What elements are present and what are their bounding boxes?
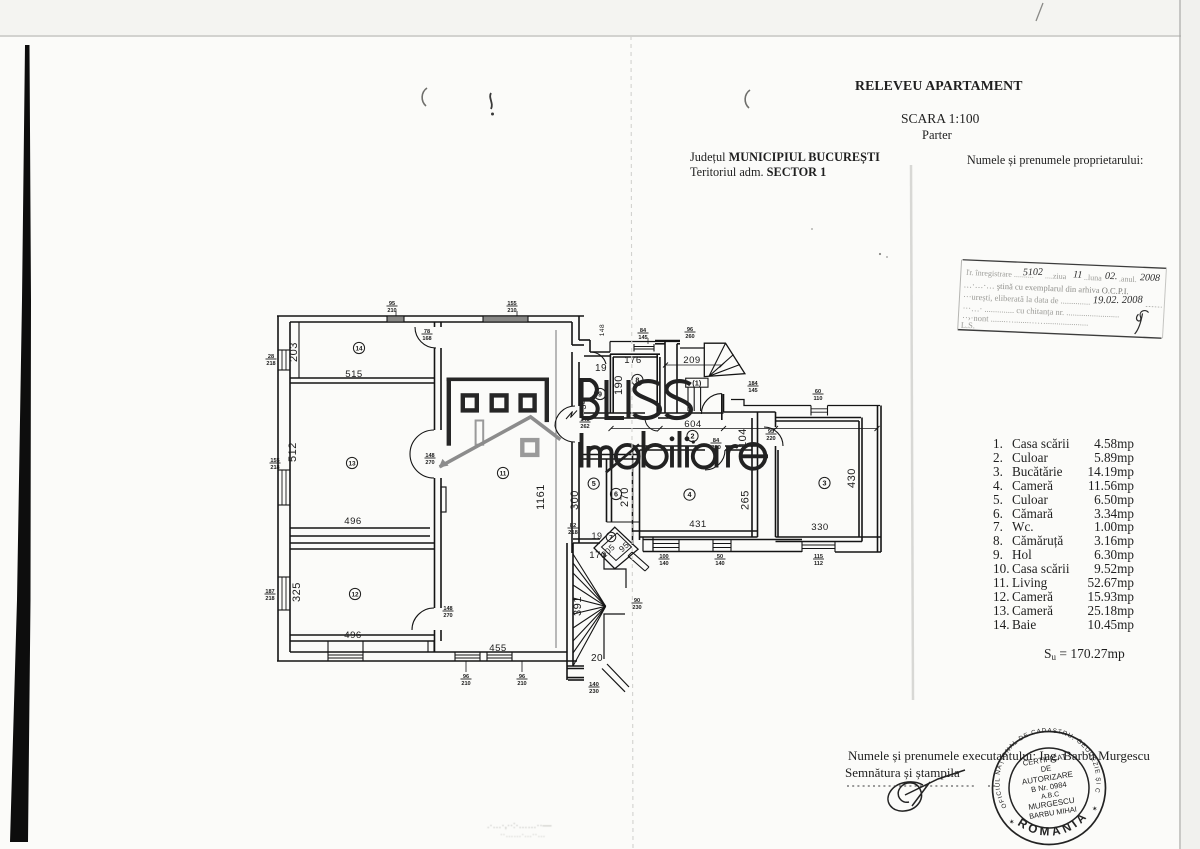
svg-text:270: 270: [619, 487, 631, 507]
svg-text:210: 210: [461, 681, 470, 687]
svg-text:148: 148: [599, 324, 606, 336]
svg-text:110: 110: [813, 396, 822, 402]
svg-text:260: 260: [685, 334, 694, 340]
svg-text:19.02. 2008: 19.02. 2008: [1093, 295, 1144, 307]
svg-text:.·…·,··:·……··—: .·…·,··:·……··—: [487, 820, 551, 830]
svg-text:11: 11: [1073, 269, 1083, 280]
svg-text:19: 19: [595, 363, 607, 374]
svg-text:209: 209: [683, 355, 701, 366]
svg-text:19: 19: [591, 531, 602, 541]
svg-text:430: 430: [846, 468, 858, 488]
svg-text:330: 330: [811, 522, 829, 533]
svg-text:.anul.: .anul.: [1119, 274, 1137, 284]
svg-text:300: 300: [569, 490, 581, 510]
svg-text:1161: 1161: [535, 484, 547, 510]
svg-text:4: 4: [688, 490, 692, 499]
svg-text:496: 496: [344, 516, 362, 527]
svg-text:210: 210: [387, 308, 396, 314]
svg-text:270: 270: [425, 460, 434, 466]
svg-text:3: 3: [823, 478, 827, 487]
svg-text:203: 203: [288, 342, 300, 362]
svg-text:431: 431: [689, 519, 707, 530]
svg-text:....ziua: ....ziua: [1045, 271, 1067, 281]
svg-text:218: 218: [266, 361, 275, 367]
svg-text:..luna: ..luna: [1084, 273, 1103, 283]
svg-text:5: 5: [592, 479, 596, 488]
svg-text:20: 20: [591, 653, 603, 664]
svg-text:02.: 02.: [1105, 271, 1118, 283]
svg-text:512: 512: [287, 442, 299, 462]
svg-text:12: 12: [351, 591, 359, 598]
svg-text:145: 145: [638, 335, 647, 341]
svg-text:140: 140: [659, 561, 668, 567]
svg-text:✶: ✶: [1008, 818, 1015, 827]
svg-text:604: 604: [684, 419, 702, 430]
svg-text:230: 230: [589, 689, 599, 695]
svg-text:168: 168: [422, 336, 431, 342]
svg-text:190: 190: [613, 375, 625, 395]
svg-text:218: 218: [568, 530, 578, 536]
svg-text:210: 210: [507, 308, 516, 314]
svg-text:218: 218: [265, 596, 274, 602]
svg-text:270: 270: [443, 613, 452, 619]
svg-text:112: 112: [814, 561, 823, 567]
svg-text:170: 170: [589, 550, 607, 561]
svg-text:262: 262: [580, 424, 589, 430]
svg-text:325: 325: [291, 582, 303, 602]
svg-text:5102: 5102: [1023, 267, 1043, 279]
svg-text:L.S.: L.S.: [961, 320, 976, 331]
svg-text:13: 13: [348, 460, 356, 467]
svg-text:391: 391: [572, 596, 584, 616]
svg-text:✶: ✶: [1091, 805, 1098, 814]
svg-text:··……·…··…: ··……·…··…: [500, 830, 545, 839]
svg-text:140: 140: [715, 561, 724, 567]
svg-text:7: 7: [609, 534, 613, 541]
svg-text:455: 455: [489, 643, 507, 654]
svg-text:6: 6: [614, 489, 618, 498]
svg-text:2008: 2008: [1140, 272, 1160, 284]
svg-text:220: 220: [766, 436, 775, 442]
svg-text:265: 265: [740, 490, 752, 510]
svg-text:(1): (1): [692, 379, 702, 388]
svg-text:14: 14: [355, 345, 363, 352]
svg-text:2: 2: [691, 431, 695, 440]
svg-text:95: 95: [617, 540, 631, 554]
svg-text:210: 210: [517, 681, 526, 687]
svg-text:230: 230: [632, 605, 641, 611]
svg-text:145: 145: [748, 388, 757, 394]
svg-text:11: 11: [500, 470, 507, 477]
svg-text:176: 176: [624, 355, 642, 366]
svg-text:218: 218: [270, 465, 279, 471]
